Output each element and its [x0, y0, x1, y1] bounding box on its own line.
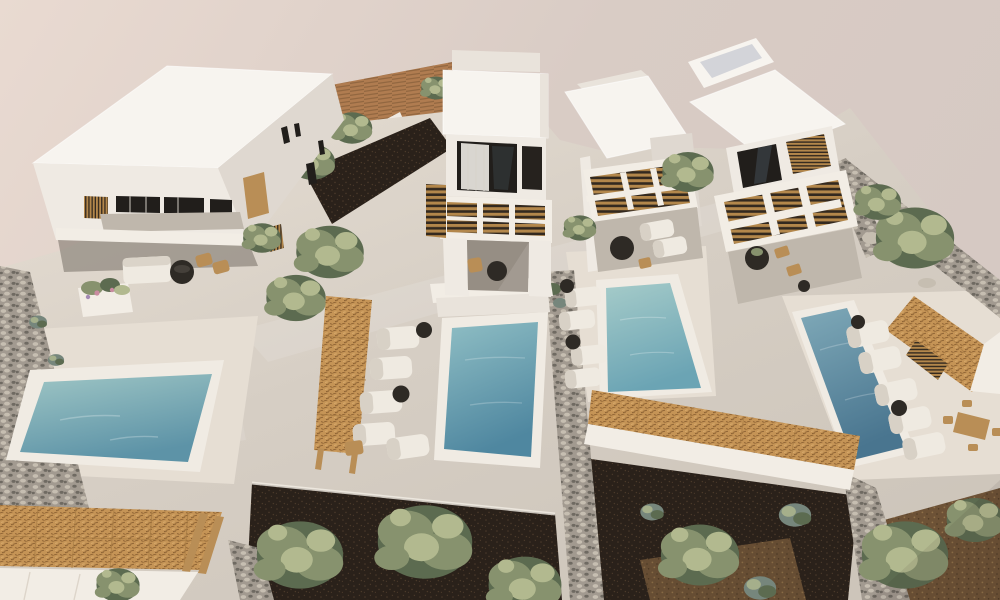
curtain [461, 143, 489, 191]
olive-tree [242, 223, 281, 252]
pool-center [430, 277, 553, 468]
wooden-chair [344, 440, 364, 456]
wall-shrub [553, 298, 567, 308]
parasol [891, 400, 907, 416]
planter-shrub [114, 285, 130, 295]
pool-water [444, 322, 538, 457]
roof-upper [452, 50, 540, 72]
parasol [560, 279, 574, 293]
rock [918, 278, 936, 288]
olive-tree [660, 152, 713, 192]
fire-table-top [174, 265, 190, 273]
parasol [566, 335, 581, 350]
sun-lounger [558, 309, 595, 331]
parasol [393, 386, 410, 403]
shrub [48, 354, 64, 366]
porch-ottoman [487, 261, 507, 281]
sun-lounger [369, 356, 412, 381]
balcony-window [116, 196, 160, 213]
dining-chair [962, 400, 972, 407]
dining-chair [992, 428, 1000, 436]
table-plant [751, 248, 763, 256]
olive-tree [853, 184, 901, 220]
olive-tree [264, 275, 326, 321]
terrace-sofa [122, 256, 171, 284]
villa-complex-scene [0, 0, 1000, 600]
olive-tree [95, 568, 140, 600]
ground-floor-pier [443, 238, 469, 296]
parasol [851, 315, 865, 329]
shrub [640, 504, 663, 521]
shrub [744, 576, 776, 599]
planter-flower [94, 290, 99, 295]
sun-lounger [376, 326, 419, 351]
pool-water [20, 374, 212, 462]
side-pergola-slats [426, 184, 446, 238]
parasol [416, 322, 432, 338]
olive-tree [294, 226, 364, 279]
planter-flower [110, 288, 114, 292]
terrace-ottoman [798, 280, 810, 292]
dining-chair [943, 416, 953, 424]
planter-flower [86, 295, 90, 299]
roof-main [443, 70, 548, 138]
shrub [29, 316, 47, 329]
pool-left [6, 360, 224, 472]
roof-parapet-shade [540, 74, 548, 138]
porch-chair [467, 257, 483, 273]
planter-shrub [81, 281, 103, 295]
architectural-rendering: Aerial 3D architectural rendering of a c… [0, 0, 1000, 600]
olive-tree [374, 505, 472, 579]
shrub [779, 503, 811, 526]
sun-lounger [564, 367, 601, 389]
dining-chair [968, 444, 978, 451]
olive-tree [254, 521, 344, 588]
olive-tree [658, 525, 739, 586]
olive-tree [563, 215, 597, 240]
balcony-window [210, 199, 232, 214]
balcony-floor [100, 212, 244, 232]
ground-floor-pier [529, 240, 551, 297]
terrace-ottoman [610, 236, 634, 260]
side-window [522, 146, 542, 190]
balcony-window [164, 197, 204, 214]
